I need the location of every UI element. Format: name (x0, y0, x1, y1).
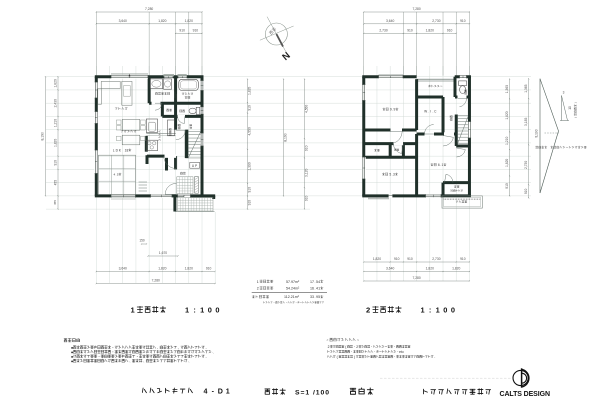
svg-text:2: 2 (356, 345, 358, 349)
svg-text:1,820: 1,820 (505, 111, 509, 119)
svg-text:0: 0 (451, 306, 455, 315)
svg-text:1,670: 1,670 (159, 251, 167, 255)
svg-text:3,640: 3,640 (386, 19, 394, 23)
svg-text:3,185: 3,185 (524, 118, 528, 126)
svg-text:910: 910 (524, 188, 528, 194)
svg-text:910: 910 (247, 200, 251, 206)
svg-text:1: 1 (226, 388, 230, 396)
svg-text:CALTS DESIGN: CALTS DESIGN (500, 391, 550, 398)
svg-text:3,640: 3,640 (386, 267, 394, 271)
svg-text:4,550: 4,550 (247, 127, 251, 135)
svg-text:1: 1 (200, 306, 204, 315)
svg-text:1: 1 (436, 306, 440, 315)
svg-text:910: 910 (53, 160, 57, 166)
svg-text:150: 150 (139, 239, 145, 243)
svg-text:1,820: 1,820 (373, 257, 381, 261)
svg-text:1,820: 1,820 (452, 267, 460, 271)
svg-text:1: 1 (442, 163, 444, 167)
svg-text:455: 455 (53, 180, 57, 186)
svg-text:1,820: 1,820 (185, 267, 193, 271)
svg-text:.: . (428, 110, 429, 114)
svg-text:910: 910 (304, 195, 308, 201)
svg-text:2: 2 (328, 345, 330, 349)
svg-text:455: 455 (53, 200, 57, 205)
svg-text:): ) (574, 102, 578, 103)
svg-text:D: D (218, 388, 223, 396)
svg-text:10: 10 (568, 106, 572, 110)
svg-text:8,190: 8,190 (40, 132, 44, 141)
svg-text:3,120: 3,120 (304, 169, 308, 177)
svg-text:0: 0 (208, 306, 212, 315)
svg-text:2,730: 2,730 (524, 161, 528, 169)
svg-text:4,550: 4,550 (304, 105, 308, 113)
svg-text:): ) (354, 355, 355, 359)
svg-text:8: 8 (126, 148, 128, 152)
svg-text:1,820: 1,820 (426, 29, 434, 33)
svg-text:910: 910 (179, 29, 185, 33)
svg-text:2: 2 (257, 287, 259, 291)
svg-text:7,280: 7,280 (412, 276, 420, 280)
svg-text:910: 910 (407, 257, 413, 261)
svg-text:3,640: 3,640 (119, 267, 127, 271)
svg-text:L: L (113, 148, 115, 152)
svg-text:910: 910 (304, 145, 308, 151)
svg-text:1,820: 1,820 (426, 267, 434, 271)
svg-text:3: 3 (563, 91, 565, 95)
svg-text:910: 910 (505, 183, 509, 189)
svg-text:4: 4 (203, 388, 207, 396)
svg-text:2,430: 2,430 (53, 99, 57, 107)
svg-text:0: 0 (443, 306, 447, 315)
svg-text:>: > (357, 338, 359, 342)
svg-text:7,280: 7,280 (145, 7, 153, 11)
svg-text:2: 2 (366, 306, 370, 315)
svg-text:54.24m²: 54.24m² (286, 287, 300, 291)
svg-text:1,820: 1,820 (505, 159, 509, 167)
svg-text:1,820: 1,820 (247, 87, 251, 95)
svg-text:0: 0 (215, 306, 219, 315)
svg-text:1,820: 1,820 (53, 79, 57, 87)
svg-text:910: 910 (206, 267, 212, 271)
svg-text:3,640: 3,640 (119, 19, 127, 23)
svg-text:(: ( (574, 117, 578, 118)
svg-text:S=1 /100: S=1 /100 (295, 390, 330, 397)
svg-text:1,365: 1,365 (505, 85, 509, 93)
svg-text:4: 4 (318, 280, 320, 284)
svg-text:8,190: 8,190 (535, 129, 539, 137)
svg-text:2,730: 2,730 (432, 257, 440, 261)
svg-text:5: 5 (318, 295, 320, 299)
svg-text:1,820: 1,820 (158, 19, 166, 23)
svg-text:2,730: 2,730 (432, 19, 440, 23)
svg-text:1,210: 1,210 (53, 119, 57, 127)
svg-text:910: 910 (460, 19, 466, 23)
svg-text:1,365: 1,365 (524, 84, 528, 92)
svg-text:112.21m²: 112.21m² (284, 295, 300, 299)
svg-text:910: 910 (193, 29, 199, 33)
svg-text:1: 1 (257, 280, 259, 284)
svg-text:910: 910 (247, 105, 251, 111)
svg-text:1,820: 1,820 (158, 267, 166, 271)
svg-text:1: 1 (318, 287, 320, 291)
svg-text:1,390: 1,390 (247, 162, 251, 170)
svg-text:2,730: 2,730 (379, 29, 387, 33)
svg-text::: : (429, 306, 431, 315)
svg-text:910: 910 (247, 187, 251, 193)
svg-text:1,820: 1,820 (53, 139, 57, 147)
svg-text:910: 910 (407, 29, 413, 33)
svg-text:910: 910 (394, 257, 400, 261)
svg-text:1: 1 (420, 306, 424, 315)
svg-text:<: < (326, 338, 328, 342)
svg-text:8,190: 8,190 (283, 133, 287, 142)
svg-text:1,210: 1,210 (505, 137, 509, 145)
svg-text:7,280: 7,280 (152, 279, 160, 283)
svg-text:7,280: 7,280 (412, 7, 420, 11)
svg-text:3: 3 (393, 173, 395, 177)
svg-text::: : (193, 306, 195, 315)
svg-text:910: 910 (447, 29, 453, 33)
svg-text:1: 1 (185, 306, 189, 315)
svg-text:9: 9 (394, 108, 396, 112)
svg-text:I: I (430, 110, 431, 114)
svg-text:P: P (195, 164, 197, 168)
svg-text:57.97m²: 57.97m² (286, 280, 300, 284)
svg-text:910: 910 (460, 257, 466, 261)
